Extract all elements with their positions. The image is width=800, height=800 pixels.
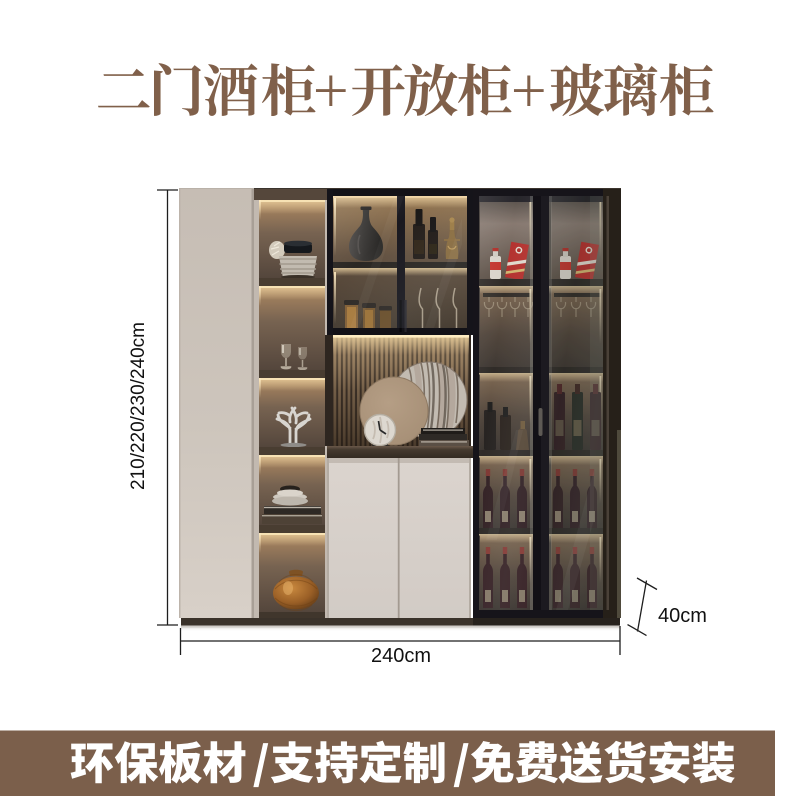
svg-text:210/220/230/240cm: 210/220/230/240cm (128, 322, 149, 490)
svg-text:40cm: 40cm (658, 605, 707, 627)
svg-text:240cm: 240cm (371, 645, 431, 667)
